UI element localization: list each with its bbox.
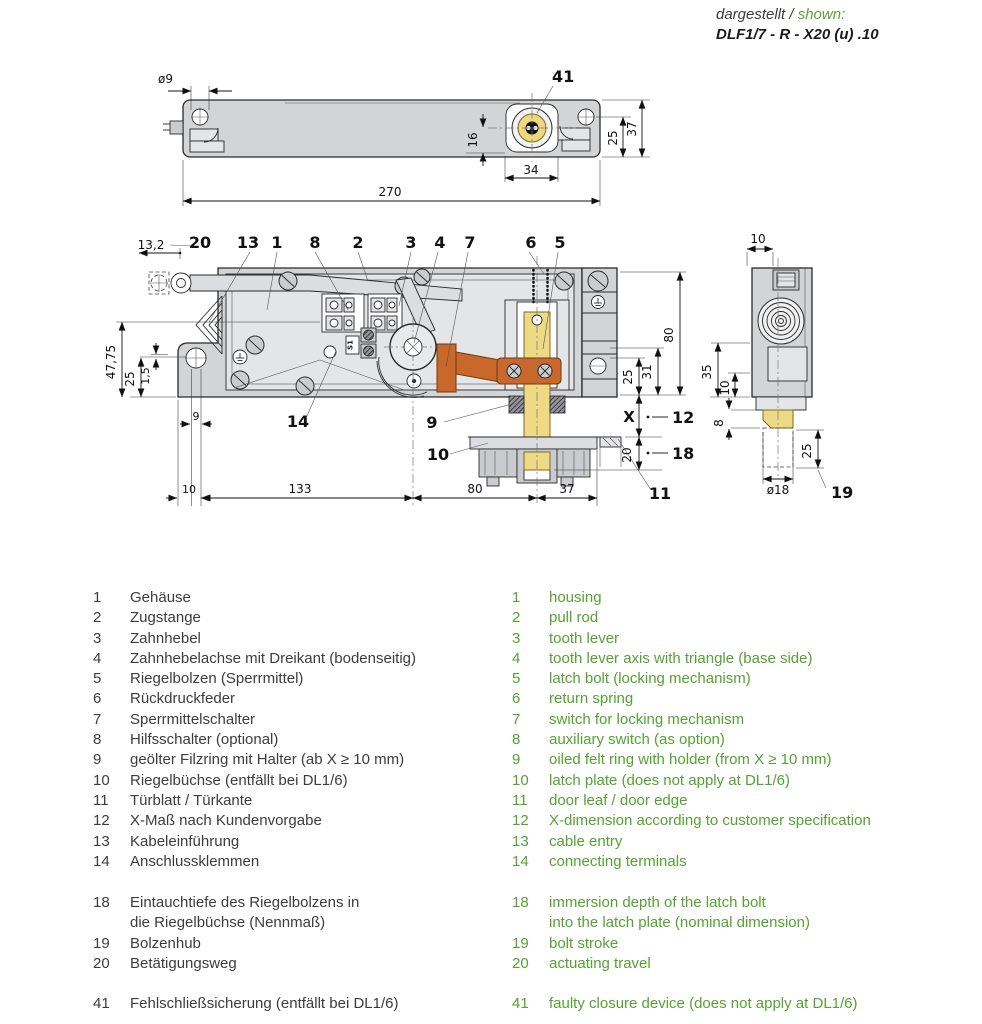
legend-group-dims-de: 18Eintauchtiefe des Riegelbolzens in die…: [93, 893, 503, 974]
dim-9-small: 9: [180, 410, 212, 424]
spring-spiral: [758, 298, 804, 344]
svg-text:10: 10: [718, 380, 732, 395]
dim-25-37-right: 25 37: [596, 100, 650, 157]
part-label-1: 1: [271, 233, 282, 252]
side-dim-10-left: 10: [718, 373, 750, 397]
legend-group-parts-de: 1Gehäuse 2Zugstange 3Zahnhebel 4Zahnhebe…: [93, 588, 503, 872]
legend-row: 10Riegelbüchse (entfällt bei DL1/6): [93, 771, 503, 791]
legend-row: 41faulty closure device (does not apply …: [512, 994, 977, 1014]
svg-text:1,5: 1,5: [139, 367, 152, 385]
legend-row: 6return spring: [512, 689, 977, 709]
dim-270-label: 270: [379, 185, 402, 199]
side-dim-10-top: 10: [747, 232, 773, 266]
s1-marking-box: S1: [346, 336, 359, 354]
dim-34-label: 34: [523, 163, 538, 177]
part-label-7: 7: [464, 233, 475, 252]
technical-drawing-page: dargestellt / shown: DLF1/7 - R - X20 (u…: [0, 0, 982, 1024]
legend-group-parts-en: 1housing 2pull rod 3tooth lever 4tooth l…: [512, 588, 977, 872]
legend-row: 18immersion depth of the latch bolt into…: [512, 893, 977, 934]
legend-row: 14Anschlussklemmen: [93, 852, 503, 872]
dim-16-label: 16: [466, 132, 480, 147]
legend-row: 18Eintauchtiefe des Riegelbolzens in die…: [93, 893, 503, 934]
part-label-5: 5: [554, 233, 565, 252]
svg-text:9: 9: [193, 410, 200, 423]
part-label-9: 9: [426, 413, 437, 432]
dim-13-2: 13,2: [138, 238, 182, 259]
s1-marking: S1: [347, 340, 355, 350]
dim-34: 34: [505, 156, 558, 182]
legend-group-extra-en: 41faulty closure device (does not apply …: [512, 994, 977, 1014]
part-label-6: 6: [525, 233, 536, 252]
legend-column-german: 1Gehäuse 2Zugstange 3Zahnhebel 4Zahnhebe…: [93, 588, 503, 1015]
legend-row: 7Sperrmittelschalter: [93, 710, 503, 730]
legend-row: 41Fehlschließsicherung (entfällt bei DL1…: [93, 994, 503, 1014]
legend-row: 3tooth lever: [512, 629, 977, 649]
front-view-drawing: S1: [104, 233, 694, 506]
svg-text:133: 133: [289, 482, 312, 496]
legend-row: 4tooth lever axis with triangle (base si…: [512, 649, 977, 669]
legend-row: 14connecting terminals: [512, 852, 977, 872]
side-dim-8: 8: [712, 398, 760, 440]
legend-row: 12X-dimension according to customer spec…: [512, 811, 977, 831]
dim-hole-label: ø9: [158, 72, 173, 86]
legend-group-extra-de: 41Fehlschließsicherung (entfällt bei DL1…: [93, 994, 503, 1014]
legend-row: 9geölter Filzring mit Halter (ab X ≥ 10 …: [93, 750, 503, 770]
svg-text:13,2: 13,2: [138, 238, 165, 252]
part-label-19: 19: [831, 483, 853, 502]
part-label-18: 18: [672, 444, 694, 463]
svg-text:35: 35: [700, 364, 714, 379]
drawing-canvas: 41 ø9 16 34: [0, 0, 982, 560]
legend-row: 8Hilfsschalter (optional): [93, 730, 503, 750]
svg-text:25: 25: [123, 371, 137, 386]
part-label-14: 14: [287, 412, 309, 431]
part-label-20: 20: [189, 233, 211, 252]
door-side-block: [582, 268, 617, 397]
legend-row: 1housing: [512, 588, 977, 608]
legend-row: 13Kabeleinführung: [93, 832, 503, 852]
legend-row: 19Bolzenhub: [93, 934, 503, 954]
side-view-drawing: 10 35 10 8: [700, 232, 853, 502]
legend-row: 8auxiliary switch (as option): [512, 730, 977, 750]
legend-row: 2pull rod: [512, 608, 977, 628]
legend-row: 9oiled felt ring with holder (from X ≥ 1…: [512, 750, 977, 770]
part-label-10: 10: [427, 445, 449, 464]
svg-text:37: 37: [559, 482, 574, 496]
legend-row: 19bolt stroke: [512, 934, 977, 954]
legend-row: 2Zugstange: [93, 608, 503, 628]
part-label-13: 13: [237, 233, 259, 252]
legend-row: 5latch bolt (locking mechanism): [512, 669, 977, 689]
legend-row: 10latch plate (does not apply at DL1/6): [512, 771, 977, 791]
legend-row: 3Zahnhebel: [93, 629, 503, 649]
top-view-drawing: 41 ø9 16 34: [158, 67, 650, 206]
svg-text:10: 10: [750, 232, 765, 246]
legend-group-dims-en: 18immersion depth of the latch bolt into…: [512, 893, 977, 974]
dim-1-5: 1,5: [139, 343, 168, 385]
legend-row: 12X-Maß nach Kundenvorgabe: [93, 811, 503, 831]
dim-x-label: X: [623, 408, 635, 426]
legend-row: 4Zahnhebelachse mit Dreikant (bodenseiti…: [93, 649, 503, 669]
svg-text:10: 10: [182, 483, 196, 496]
svg-text:31: 31: [640, 364, 654, 379]
part-label-12: 12: [672, 408, 694, 427]
svg-text:25: 25: [800, 443, 814, 458]
dim-bottom-row: 10 133 80 37: [166, 482, 597, 498]
svg-text:ø18: ø18: [767, 483, 790, 497]
dim-25-label: 25: [606, 130, 620, 145]
part-label-8: 8: [309, 233, 320, 252]
svg-text:8: 8: [712, 419, 726, 427]
svg-text:20: 20: [620, 447, 634, 462]
part-label-3: 3: [405, 233, 416, 252]
legend-row: 11door leaf / door edge: [512, 791, 977, 811]
cable-gland-stub: [170, 121, 183, 134]
dim-37-label: 37: [625, 121, 639, 136]
legend-column-english: 1housing 2pull rod 3tooth lever 4tooth l…: [512, 588, 977, 1015]
legend-row: 5Riegelbolzen (Sperrmittel): [93, 669, 503, 689]
dim-47-75: 47,75: [104, 322, 176, 397]
part-label-11: 11: [649, 484, 671, 503]
side-dim-25: 25 19: [796, 430, 853, 502]
legend-row: 20Betätigungsweg: [93, 954, 503, 974]
svg-text:25: 25: [621, 369, 635, 384]
svg-text:80: 80: [467, 482, 482, 496]
part-label-4: 4: [434, 233, 445, 252]
legend-row: 20actuating travel: [512, 954, 977, 974]
svg-text:80: 80: [662, 327, 676, 342]
legend-row: 11Türblatt / Türkante: [93, 791, 503, 811]
part-label-2: 2: [352, 233, 363, 252]
ground-terminal: [233, 350, 247, 364]
svg-text:47,75: 47,75: [104, 345, 118, 379]
latch-plate-assembly: [470, 437, 597, 486]
part-label-41: 41: [552, 67, 574, 86]
legend-row: 13cable entry: [512, 832, 977, 852]
legend-row: 1Gehäuse: [93, 588, 503, 608]
felt-ring-right: [550, 396, 565, 413]
legend-row: 6Rückdruckfeder: [93, 689, 503, 709]
legend-row: 7switch for locking mechanism: [512, 710, 977, 730]
